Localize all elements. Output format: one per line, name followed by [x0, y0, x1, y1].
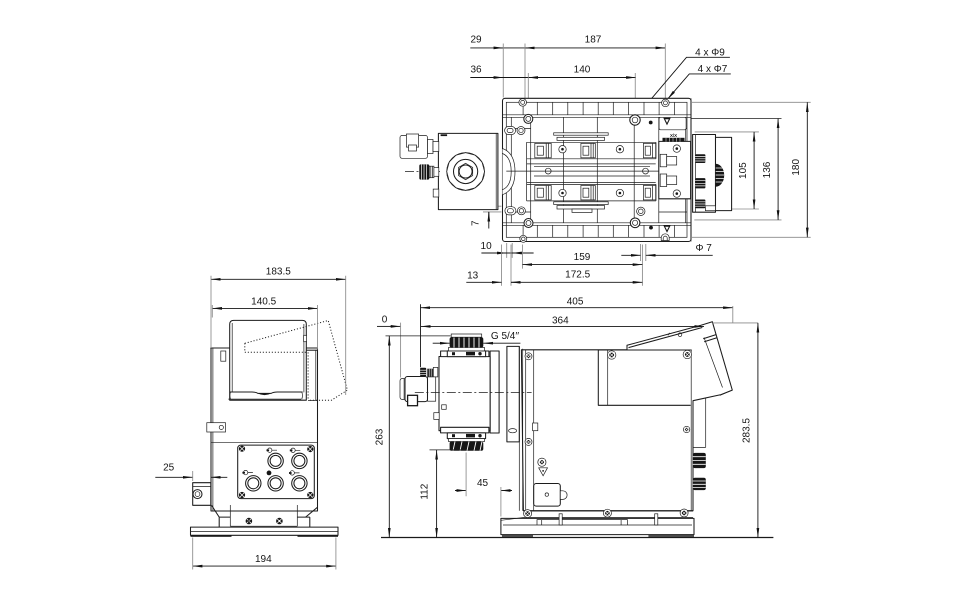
svg-text:36: 36 — [470, 65, 482, 76]
svg-text:364: 364 — [552, 315, 569, 326]
svg-text:194: 194 — [255, 554, 272, 565]
svg-text:7: 7 — [471, 220, 482, 226]
svg-text:13: 13 — [467, 271, 479, 282]
svg-text:140.5: 140.5 — [251, 297, 276, 308]
svg-text:140: 140 — [574, 65, 591, 76]
svg-text:10: 10 — [481, 241, 493, 252]
svg-text:29: 29 — [470, 35, 482, 46]
svg-text:187: 187 — [585, 35, 602, 46]
svg-text:25: 25 — [163, 463, 175, 474]
svg-text:283.5: 283.5 — [742, 418, 753, 443]
svg-text:105: 105 — [738, 162, 749, 179]
svg-text:Φ 7: Φ 7 — [696, 243, 713, 254]
svg-text:172.5: 172.5 — [565, 269, 590, 280]
svg-text:45: 45 — [477, 478, 489, 489]
svg-text:180: 180 — [791, 159, 802, 176]
svg-text:405: 405 — [567, 297, 584, 308]
svg-text:0: 0 — [382, 315, 388, 326]
svg-text:X/X: X/X — [670, 133, 677, 138]
svg-text:183.5: 183.5 — [266, 267, 291, 278]
svg-text:263: 263 — [375, 428, 386, 445]
svg-text:136: 136 — [762, 161, 773, 178]
svg-text:159: 159 — [574, 252, 591, 263]
svg-text:112: 112 — [419, 483, 430, 499]
svg-text:G 5/4′′: G 5/4′′ — [491, 331, 519, 342]
